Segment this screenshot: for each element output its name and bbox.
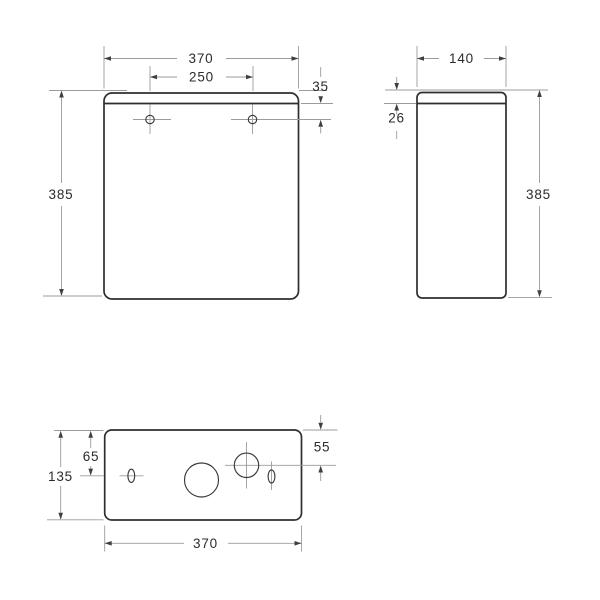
- arrow-up: [537, 90, 542, 97]
- arrow-right: [246, 75, 253, 80]
- dim-label-lid-height: 26: [388, 111, 405, 126]
- dim-top-inlet-offset: 55: [303, 415, 338, 481]
- front-view: 370 250 35 385: [43, 46, 333, 299]
- arrow-right: [295, 541, 302, 546]
- arrow-down: [58, 513, 63, 520]
- dim-front-overall-height: 385: [43, 91, 102, 297]
- dim-side-depth: 140: [417, 46, 506, 87]
- dim-label-top-width: 370: [193, 536, 218, 551]
- arrow-up: [318, 466, 323, 473]
- technical-drawing: 370 250 35 385: [0, 0, 600, 600]
- arrow-up: [394, 104, 399, 111]
- arrow-down: [88, 469, 93, 476]
- dim-side-lid-height: 26: [384, 77, 416, 139]
- dim-front-lid-to-holes: 35: [301, 67, 333, 134]
- dim-label-side-height: 385: [526, 187, 551, 202]
- dim-label-front-height: 385: [49, 187, 74, 202]
- arrow-down: [59, 289, 64, 296]
- arrow-left: [150, 75, 157, 80]
- side-body-outline: [417, 93, 506, 299]
- dim-label-front-width: 370: [189, 51, 214, 66]
- dim-top-slot-offset: 65: [83, 431, 100, 476]
- dim-side-overall-height: 385: [508, 90, 552, 298]
- front-body-outline: [104, 93, 299, 299]
- arrow-right: [499, 56, 506, 61]
- top-view: 135 65 55 370: [47, 415, 338, 552]
- dim-top-overall-depth: 135: [47, 431, 104, 520]
- arrow-down: [394, 83, 399, 90]
- arrow-left: [417, 56, 424, 61]
- dim-label-slot-offset: 65: [83, 449, 100, 464]
- arrow-down: [537, 290, 542, 297]
- side-view: 140 26 385: [384, 46, 552, 298]
- dim-front-hole-spacing: 250: [150, 66, 253, 91]
- arrow-left: [104, 56, 111, 61]
- dim-label-inlet-offset: 55: [314, 440, 331, 455]
- top-flush-hole: [185, 463, 219, 497]
- dim-label-top-depth: 135: [48, 469, 73, 484]
- arrow-left: [105, 541, 112, 546]
- arrow-down: [318, 96, 323, 103]
- dim-label-hole-spacing: 250: [189, 70, 214, 85]
- arrow-up: [318, 120, 323, 127]
- dim-label-side-depth: 140: [449, 51, 474, 66]
- arrow-down: [318, 423, 323, 430]
- arrow-right: [292, 56, 299, 61]
- arrow-up: [88, 431, 93, 438]
- arrow-up: [58, 431, 63, 438]
- arrow-up: [59, 91, 64, 98]
- dim-label-35: 35: [312, 79, 329, 94]
- dim-top-overall-width: 370: [105, 526, 302, 552]
